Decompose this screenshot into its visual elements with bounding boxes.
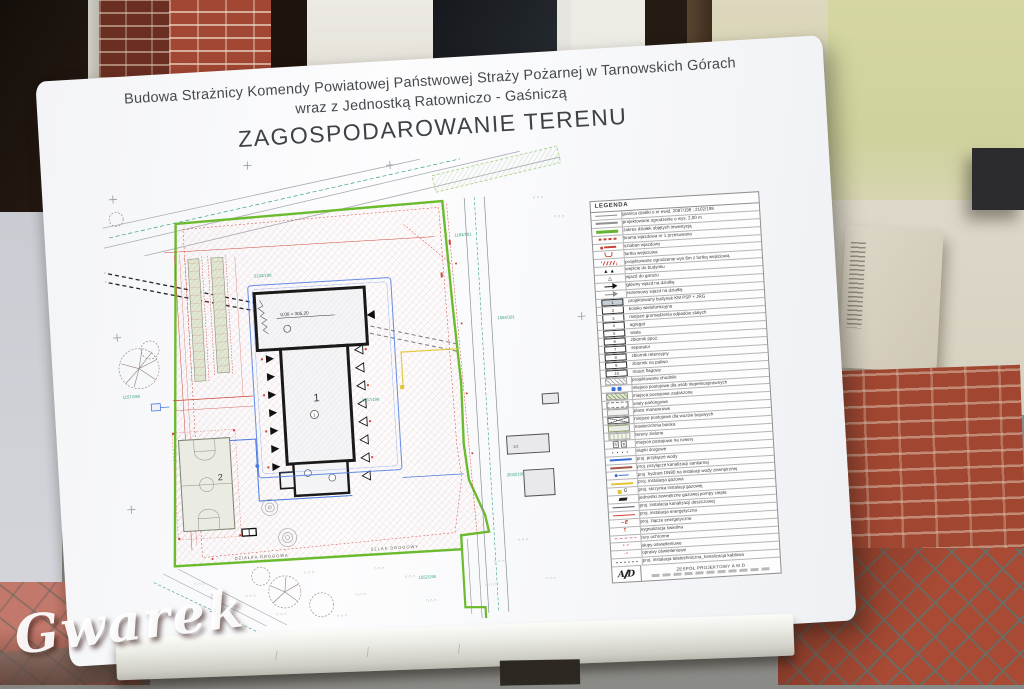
svg-text:1552/198: 1552/198 <box>418 574 436 580</box>
svg-text:2087/198: 2087/198 <box>362 397 380 403</box>
svg-text:2032/198: 2032/198 <box>507 471 525 477</box>
ac-vent-grille <box>846 242 865 329</box>
legend-panel: LEGENDA granica działki o nr ewid. 2087/… <box>589 191 781 583</box>
field-number: 2 <box>218 472 224 482</box>
legend-label: szlaban wjazdowy <box>624 242 660 249</box>
legend-label: place manewrowe <box>634 407 670 414</box>
circled-mark <box>329 474 336 481</box>
svg-text:1157/198: 1157/198 <box>123 394 141 400</box>
green-verge-strip <box>432 146 561 192</box>
legend-label: separator <box>631 345 650 351</box>
site-plan-board: Budowa Strażnicy Komendy Powiatowej Pańs… <box>35 35 856 667</box>
site-plan-drawing: ∩ ∩ ∩ <box>98 136 609 640</box>
legend-label: wiaty parkingowe <box>633 399 668 406</box>
svg-text:2102/198: 2102/198 <box>254 272 272 278</box>
legend-label: tereny zielone <box>635 431 663 437</box>
legend-label: boisko wielofunkcyjne <box>629 304 673 311</box>
ac-unit <box>838 226 943 373</box>
waste-point <box>242 528 256 536</box>
legend-label: proj. przyłącze wody <box>637 454 678 461</box>
design-team-logo: AD <box>612 566 642 583</box>
legend-label: wjazd do garażu <box>626 274 659 280</box>
window-sill <box>972 148 1024 210</box>
legend-label: rury ochronne <box>641 534 669 540</box>
neighbor-label: 1/2 <box>513 445 519 449</box>
legend-label: agregat <box>630 322 646 327</box>
legend-label: oprawy oświetleniowe <box>642 549 686 556</box>
legend-label: zbiornik ppoż. <box>631 337 659 343</box>
easel-leg <box>500 659 580 685</box>
legend-label: furtka wejściowa <box>624 250 657 256</box>
legend-label: maszt flagowy <box>632 368 661 374</box>
legend-rows: granica działki o nr ewid. 2087/198 ; 21… <box>591 203 780 567</box>
svg-text:1183/191: 1183/191 <box>454 231 472 237</box>
legend-label: nawierzchnia boiska <box>635 423 676 430</box>
legend-label: zbiornik retencyjny <box>632 352 669 359</box>
legend-label: wiata <box>630 330 641 335</box>
parcel-boundary-extension <box>462 548 486 621</box>
legend-label: zbiornik na paliwo <box>632 360 668 367</box>
svg-text:1554/191: 1554/191 <box>497 314 515 320</box>
sports-field: 2 <box>172 429 241 540</box>
building-number: 1 <box>313 392 320 404</box>
legend-label: słupki drogowe <box>636 447 666 453</box>
legend-label: wejście do budynku <box>625 265 664 272</box>
legend-label: sygnalizacja świetlna <box>641 525 683 532</box>
tray-scuff-marks <box>236 641 536 662</box>
legend-label: słupy oświetleniowe <box>642 541 682 548</box>
